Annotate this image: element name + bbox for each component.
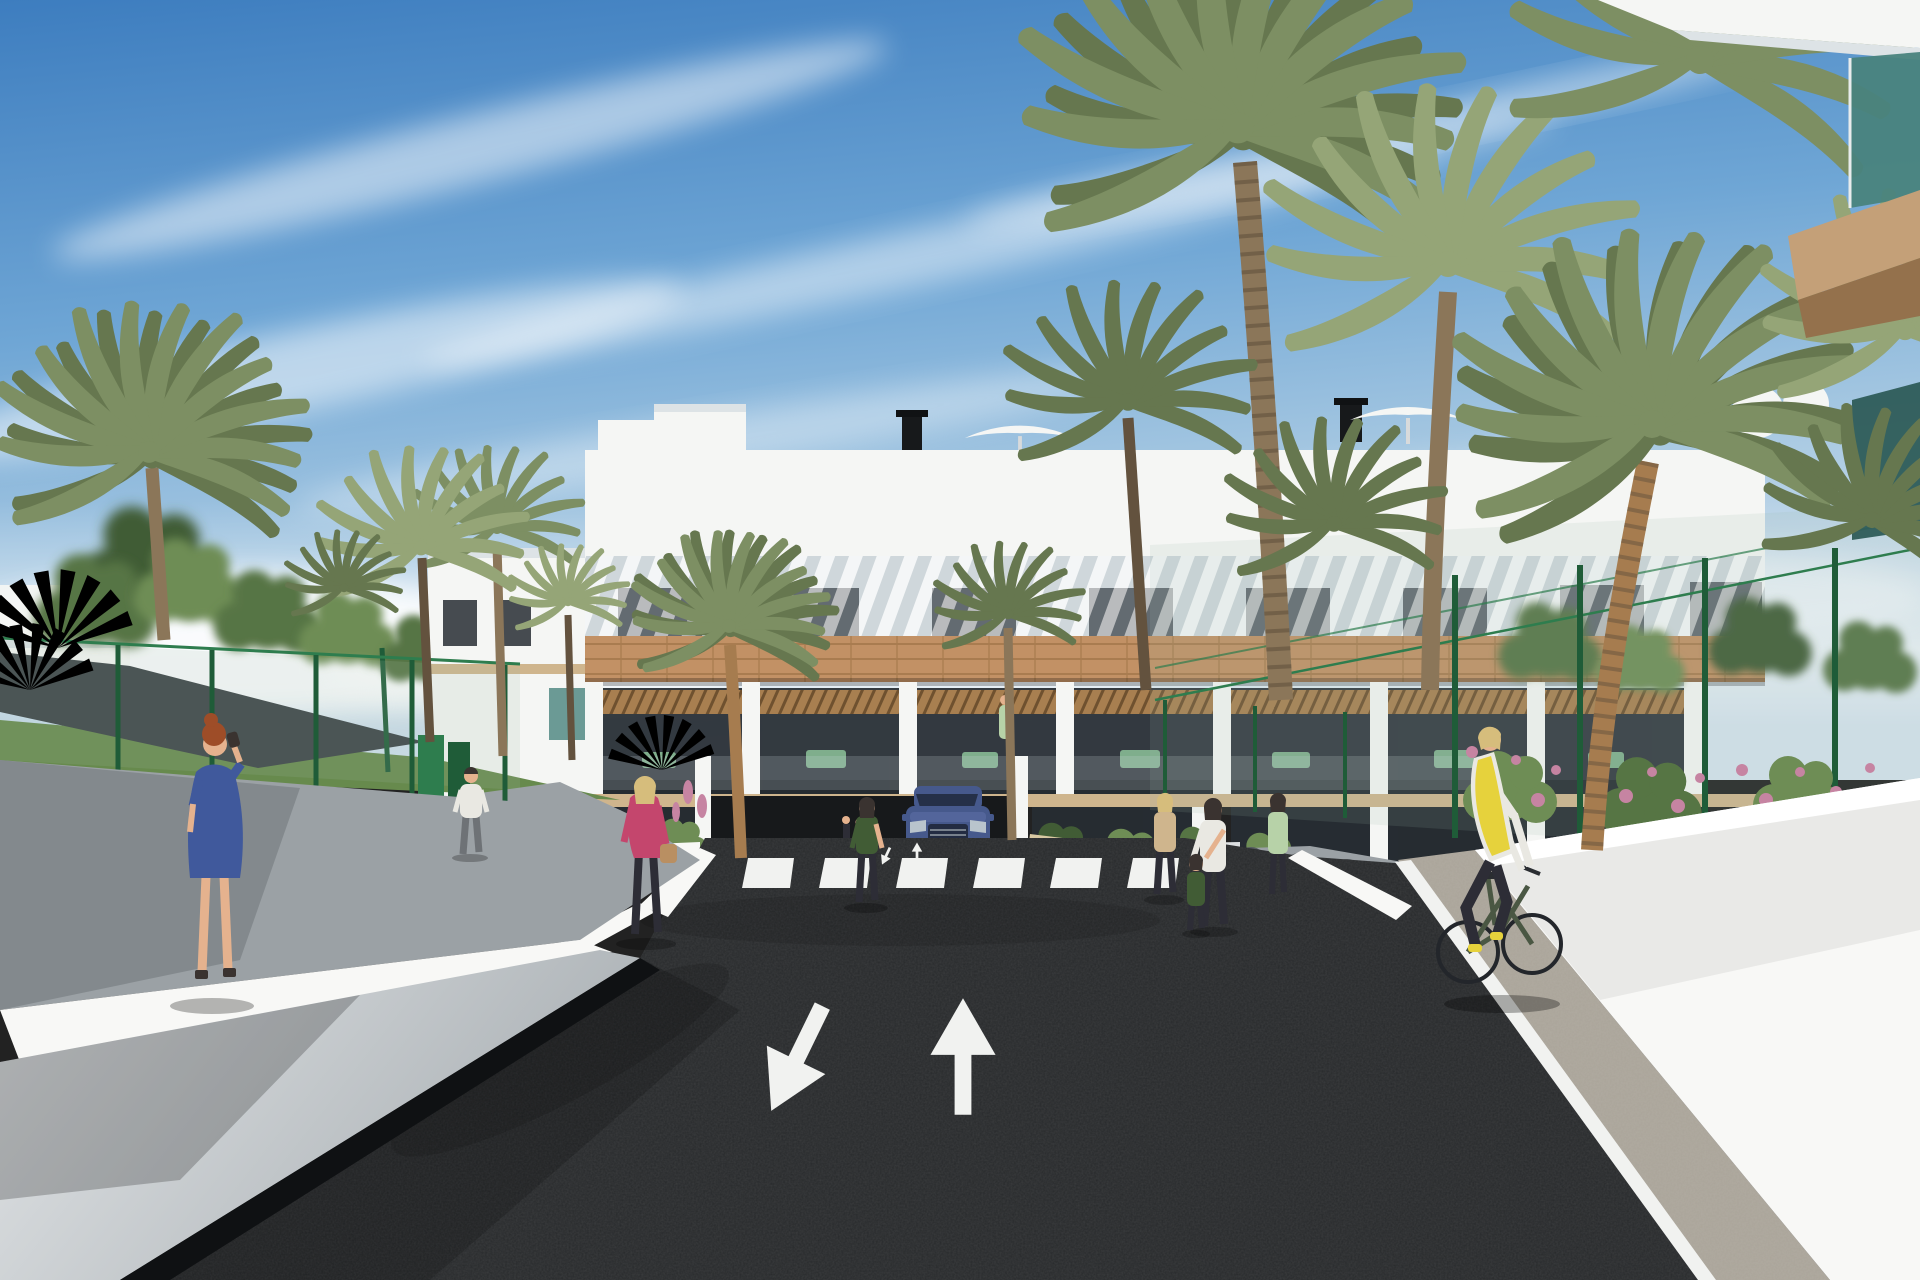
scene-canvas <box>0 0 1920 1280</box>
glass-balustrade <box>1850 52 1920 208</box>
chimney-icon <box>902 414 922 452</box>
architectural-render <box>0 0 1920 1280</box>
